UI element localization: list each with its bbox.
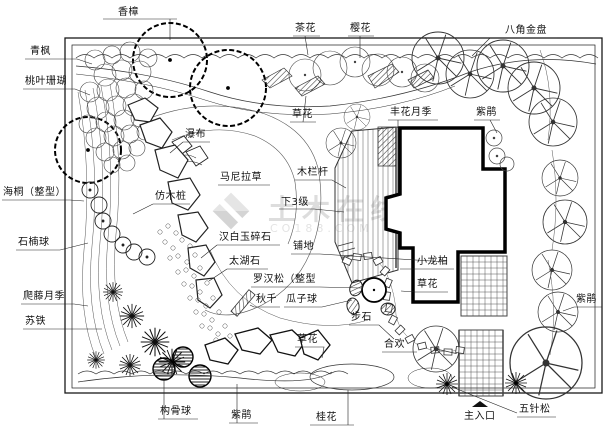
label-flowers-top: 草花	[292, 108, 313, 121]
label-down-3-steps: 下3级	[281, 196, 309, 209]
top-flower-beds	[262, 64, 434, 96]
label-flowers-mid: 草花	[417, 278, 438, 291]
label-guazi-ball: 瓜子球	[286, 293, 318, 306]
label-photinia-ball: 石楠球	[18, 236, 50, 249]
label-azalea-top: 紫鹃	[476, 106, 497, 119]
label-taihu-rock: 太湖石	[229, 255, 261, 268]
label-main-entrance: 主入口	[464, 410, 496, 423]
label-faux-wood-stake: 仿木桩	[155, 190, 187, 203]
label-holly-ball: 构骨球	[160, 405, 192, 418]
label-flowers-bottom: 草花	[297, 333, 318, 346]
label-waterfall: 瀑布	[185, 128, 206, 141]
label-osmanthus: 桂花	[316, 411, 337, 424]
label-camellia: 茶花	[295, 22, 316, 35]
label-dwarf-juniper: 小龙柏	[417, 255, 449, 268]
label-cycad: 苏铁	[25, 315, 46, 328]
label-manila-grass: 马尼拉草	[220, 171, 262, 184]
label-paving: 铺地	[293, 240, 314, 253]
label-stepping-stones: 步石	[351, 311, 372, 324]
label-aucuba: 桃叶珊瑚	[25, 75, 67, 88]
label-azalea-right: 紫鹃	[576, 293, 597, 306]
label-camphor: 香樟	[118, 6, 139, 19]
label-silk-tree: 合欢	[384, 338, 405, 351]
entrance-arrow-icon	[472, 401, 488, 407]
bottom-hedge	[78, 364, 452, 391]
label-white-marble-gravel: 汉白玉碎石	[219, 231, 272, 244]
planter-bed	[378, 127, 396, 166]
label-cherry: 樱花	[350, 22, 371, 35]
podocarpus-topiary	[362, 278, 386, 302]
label-floribunda-rose: 丰花月季	[390, 106, 432, 119]
label-five-needle-pine: 五针松	[519, 403, 551, 416]
house-outline	[386, 128, 505, 302]
label-fatsia: 八角金盘	[505, 24, 547, 37]
label-podocarpus: 罗汉松（整型	[253, 273, 316, 286]
rock-chain	[128, 98, 222, 308]
azalea-shrubs-house	[486, 130, 514, 171]
patio-paving	[461, 256, 507, 316]
entrance-pines	[436, 372, 527, 395]
label-climbing-rose: 爬藤月季	[23, 290, 65, 303]
label-pittosporum: 海桐（整型）	[3, 186, 66, 199]
label-azalea-bottom: 紫鹃	[231, 409, 252, 422]
garden-plan-canvas: 土木在线 CO188.COM	[0, 0, 610, 432]
entrance-walkway	[459, 330, 503, 396]
label-wood-railing: 木栏杆	[297, 166, 329, 179]
site-plan-drawing	[0, 0, 610, 432]
holly-balls	[153, 347, 211, 387]
label-japanese-maple: 青枫	[30, 45, 51, 58]
label-swing: 秋千	[256, 293, 277, 306]
site-boundary	[65, 38, 602, 393]
